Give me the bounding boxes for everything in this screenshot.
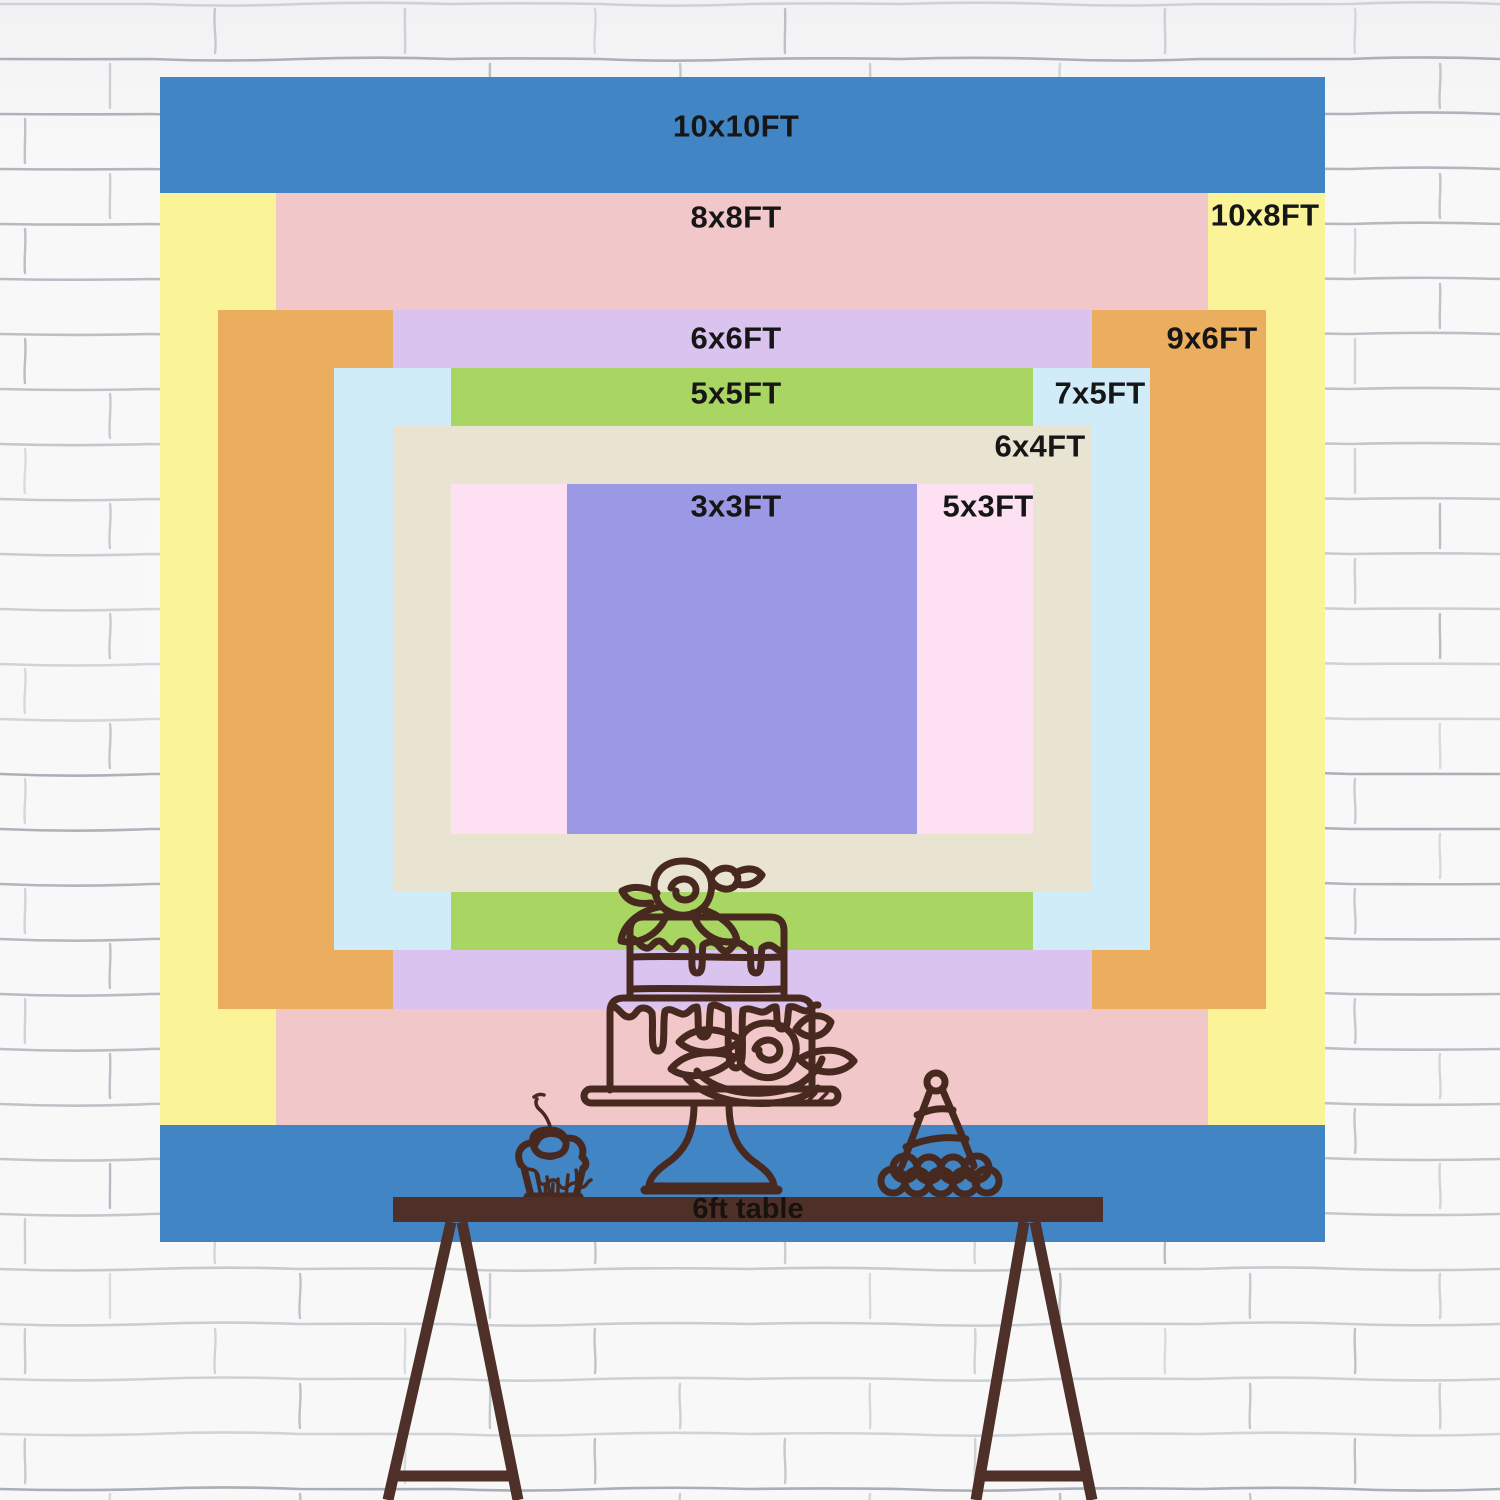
size-label-5x3ft: 5x3FT: [942, 490, 1033, 521]
backdrop-size-chart: 10x10FT10x8FT8x8FT9x6FT6x6FT7x5FT5x5FT6x…: [0, 0, 1500, 1500]
backdrop-layers: 10x10FT10x8FT8x8FT9x6FT6x6FT7x5FT5x5FT6x…: [0, 0, 1500, 1500]
table-label: 6ft table: [692, 1195, 803, 1224]
size-label-7x5ft: 7x5FT: [1054, 377, 1145, 408]
size-label-6x6ft: 6x6FT: [690, 322, 781, 353]
size-label-10x10ft: 10x10FT: [673, 110, 799, 141]
size-label-6x4ft: 6x4FT: [994, 430, 1085, 461]
size-label-10x8ft: 10x8FT: [1211, 199, 1320, 230]
backdrop-rect-3x3ft: [567, 484, 917, 834]
size-label-5x5ft: 5x5FT: [690, 377, 781, 408]
size-label-8x8ft: 8x8FT: [690, 201, 781, 232]
table-top: 6ft table: [393, 1197, 1103, 1222]
size-label-9x6ft: 9x6FT: [1166, 322, 1257, 353]
size-label-3x3ft: 3x3FT: [690, 490, 781, 521]
